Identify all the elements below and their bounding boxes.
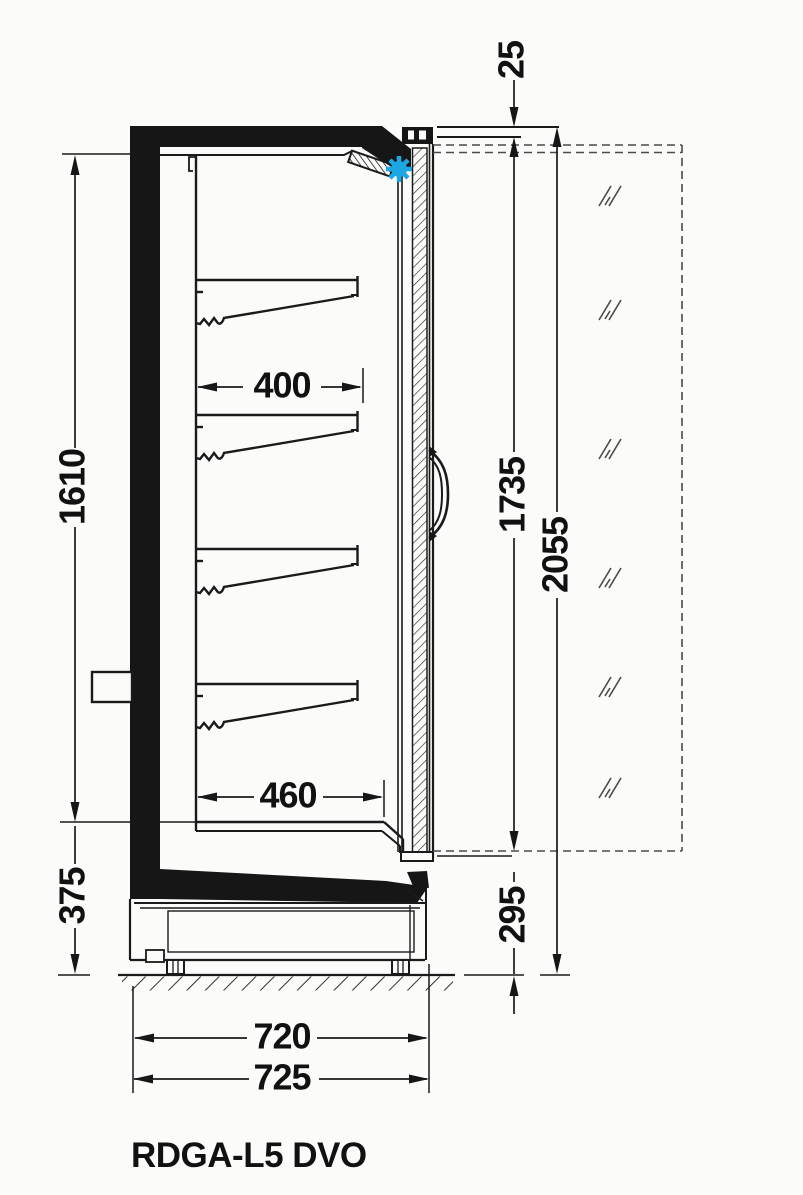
glass-mark: [599, 778, 621, 798]
refrigerated-cabinet-side-section-drawing: 25 1610 400 1735 2055 460 375 295 720 72…: [0, 0, 803, 1195]
shelf: [196, 680, 358, 729]
shelf-bracket: [196, 700, 354, 729]
door-top-hinge: [402, 127, 433, 144]
shelf-bracket: [196, 296, 354, 325]
dim-overall-height-label: 2055: [535, 516, 576, 593]
bottom-deck: [196, 822, 403, 858]
bottom-air-duct: [160, 869, 428, 903]
dim-overall-depth-label: 725: [253, 1057, 311, 1098]
shelf: [196, 545, 358, 594]
dim-base-section-height-label: 375: [52, 866, 93, 924]
dim-bottom-shelf-depth-label: 460: [259, 775, 316, 816]
glass-mark: [599, 300, 621, 320]
glass-mark: [599, 568, 621, 588]
door-handle: [429, 446, 448, 542]
model-title: RDGA-L5 DVO: [131, 1136, 367, 1175]
interior-liner: [160, 151, 352, 831]
drawing-page: 25 1610 400 1735 2055 460 375 295 720 72…: [0, 0, 803, 1195]
shelf: [196, 411, 358, 460]
rear-spacer-box: [92, 672, 132, 702]
dim-body-depth-label: 720: [253, 1016, 310, 1057]
glass-mark: [599, 439, 621, 459]
ground-line: [58, 975, 570, 991]
dim-door-glass-height-label: 1735: [492, 456, 533, 533]
door-glass-pane: [413, 148, 428, 852]
dim-bottom-front-height-label: 295: [492, 885, 533, 943]
adjustable-foot: [167, 960, 184, 974]
dim-shelf-depth-label: 400: [253, 365, 310, 406]
glass-mark: [599, 677, 621, 697]
glass-door: [398, 127, 448, 901]
shelf-bracket: [196, 431, 354, 460]
ground-hatch: [122, 977, 453, 991]
adjustable-foot: [392, 960, 409, 974]
dim-interior-height-label: 1610: [52, 449, 93, 525]
shelf-bracket: [196, 565, 354, 594]
glass-mark: [599, 186, 621, 206]
glass-reflection-marks: [599, 186, 621, 798]
dim-top-offset-label: 25: [491, 40, 532, 79]
shelf: [196, 276, 358, 325]
